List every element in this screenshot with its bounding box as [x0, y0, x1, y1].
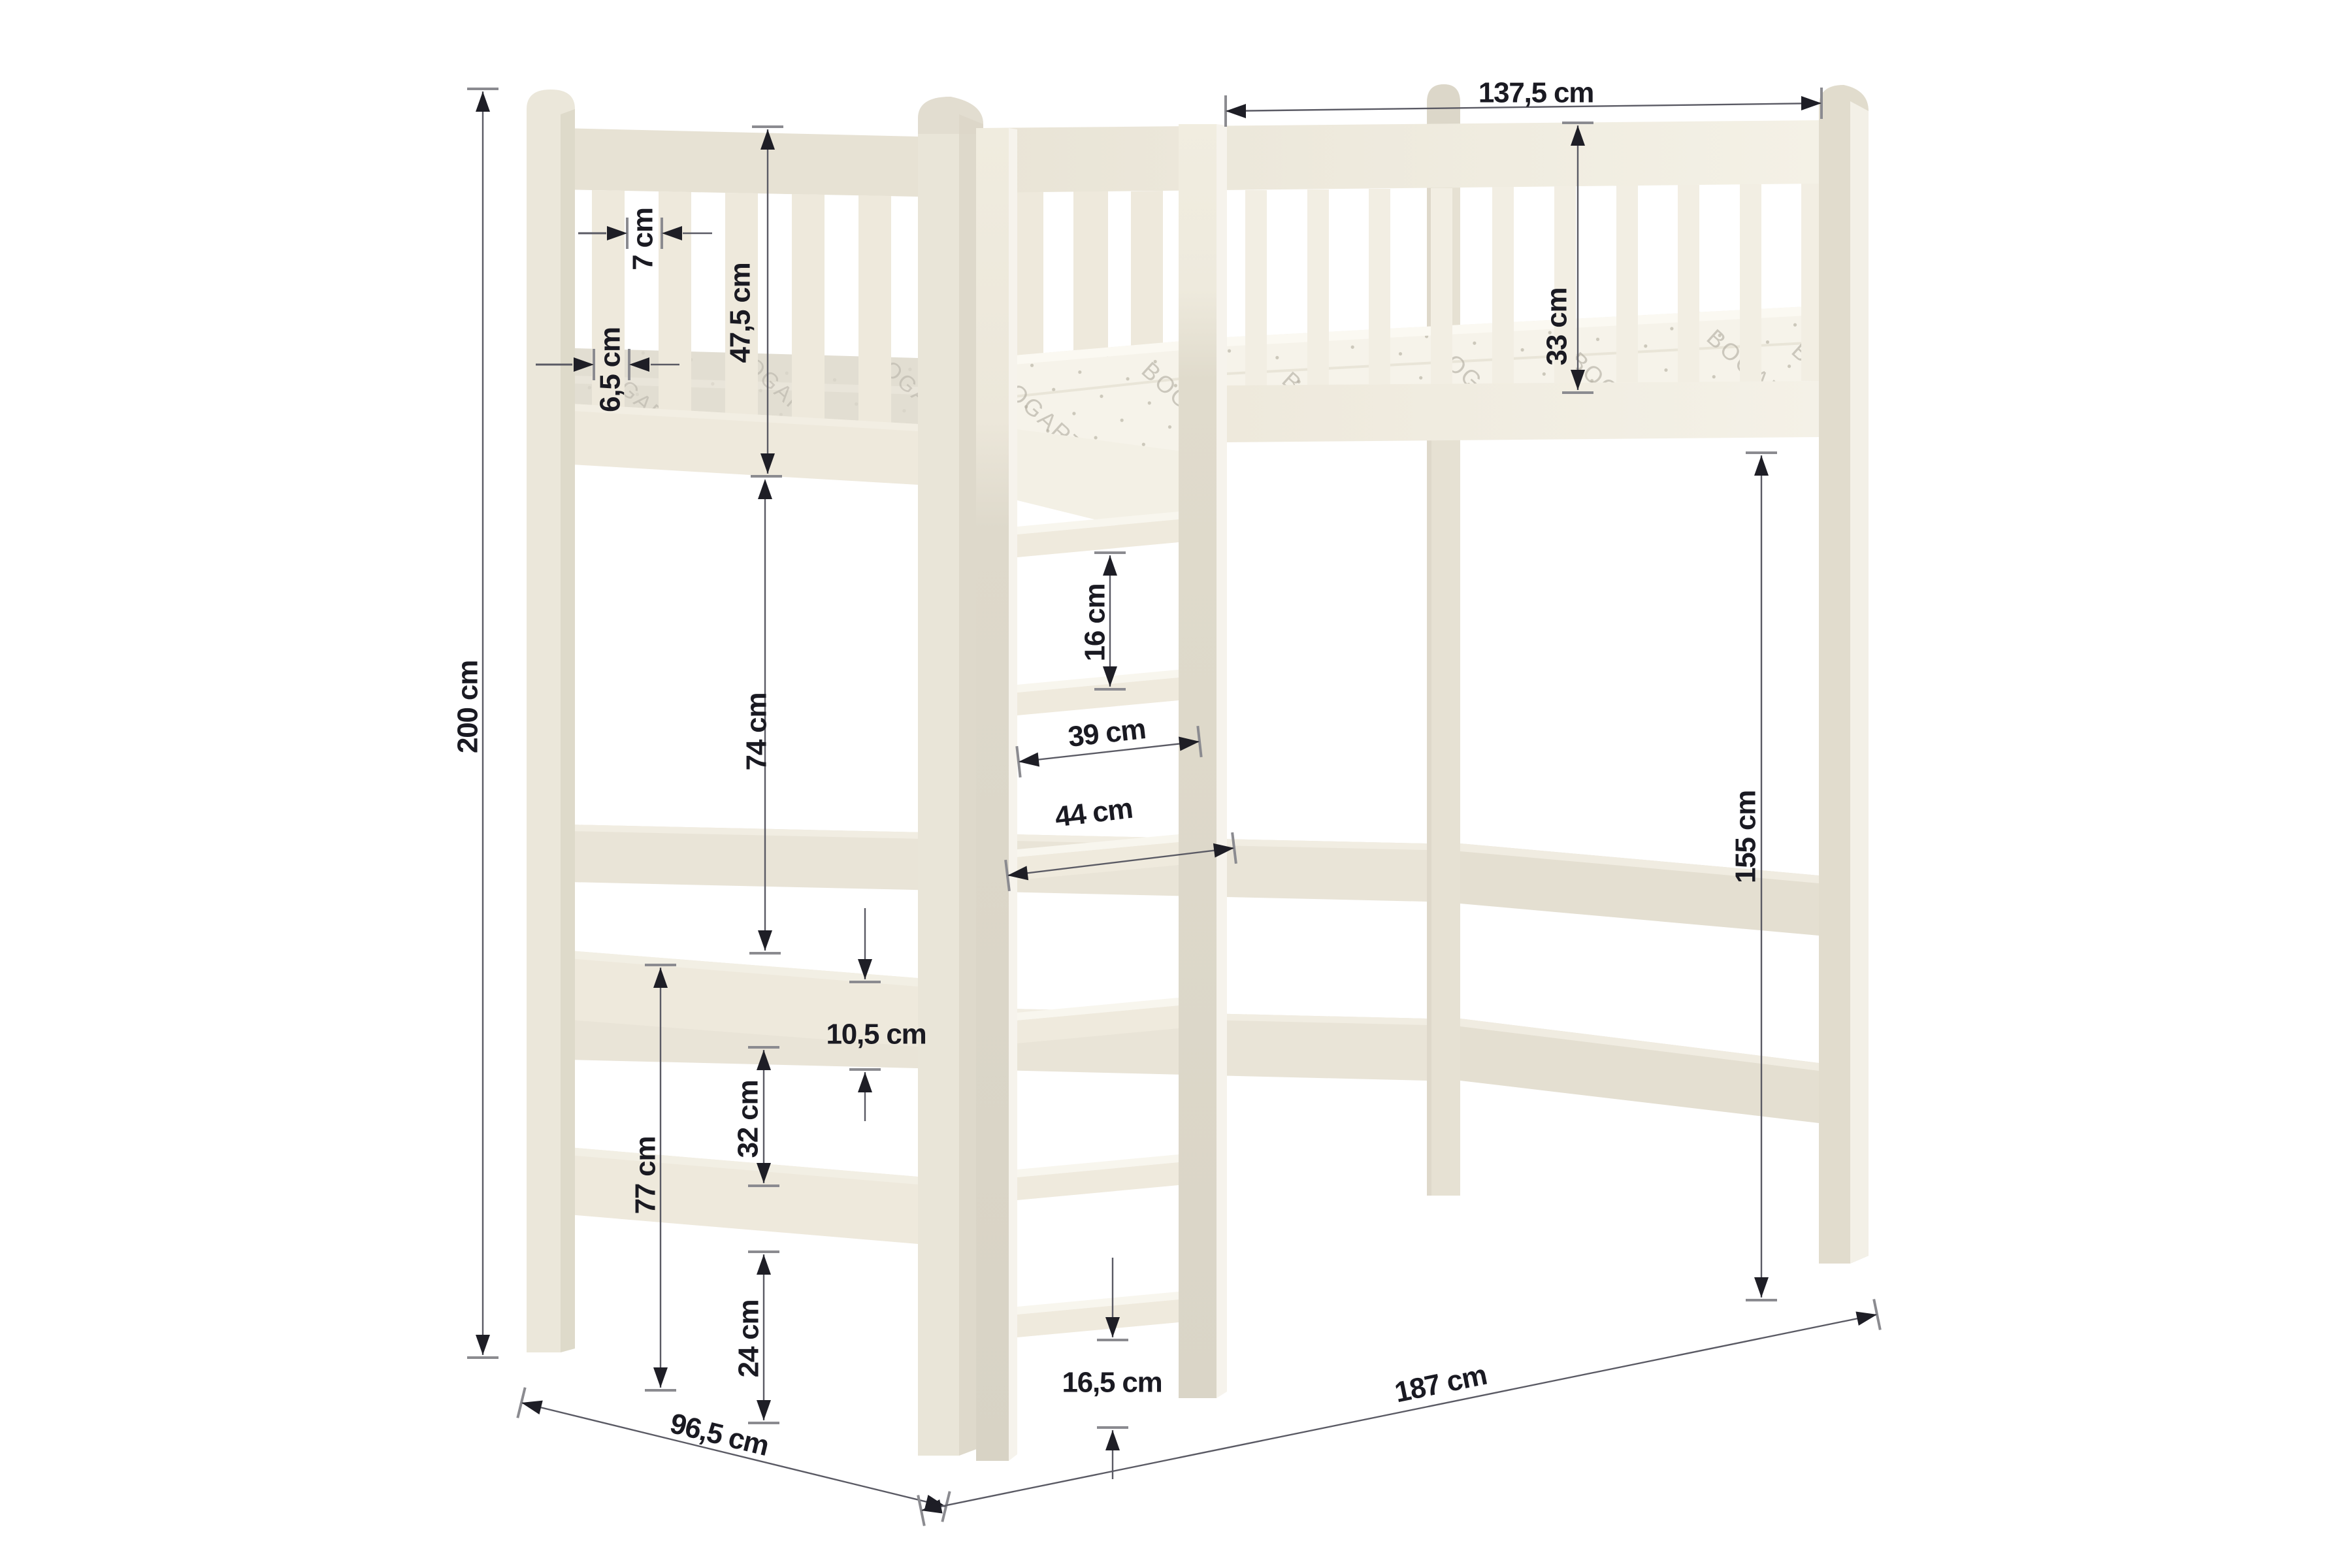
svg-text:10,5 cm: 10,5 cm — [826, 1019, 926, 1051]
svg-text:33 cm: 33 cm — [1541, 288, 1573, 366]
svg-text:74 cm: 74 cm — [741, 693, 773, 771]
svg-text:137,5 cm: 137,5 cm — [1478, 77, 1593, 109]
svg-text:32 cm: 32 cm — [732, 1081, 764, 1158]
svg-text:47,5 cm: 47,5 cm — [725, 263, 757, 363]
svg-text:24 cm: 24 cm — [733, 1300, 765, 1378]
svg-text:200 cm: 200 cm — [452, 661, 484, 753]
svg-text:6,5 cm: 6,5 cm — [595, 327, 627, 412]
svg-text:77 cm: 77 cm — [630, 1137, 662, 1215]
svg-text:155 cm: 155 cm — [1730, 791, 1762, 883]
svg-text:16,5 cm: 16,5 cm — [1062, 1367, 1162, 1399]
svg-text:7 cm: 7 cm — [627, 208, 659, 270]
svg-text:16 cm: 16 cm — [1079, 584, 1111, 662]
